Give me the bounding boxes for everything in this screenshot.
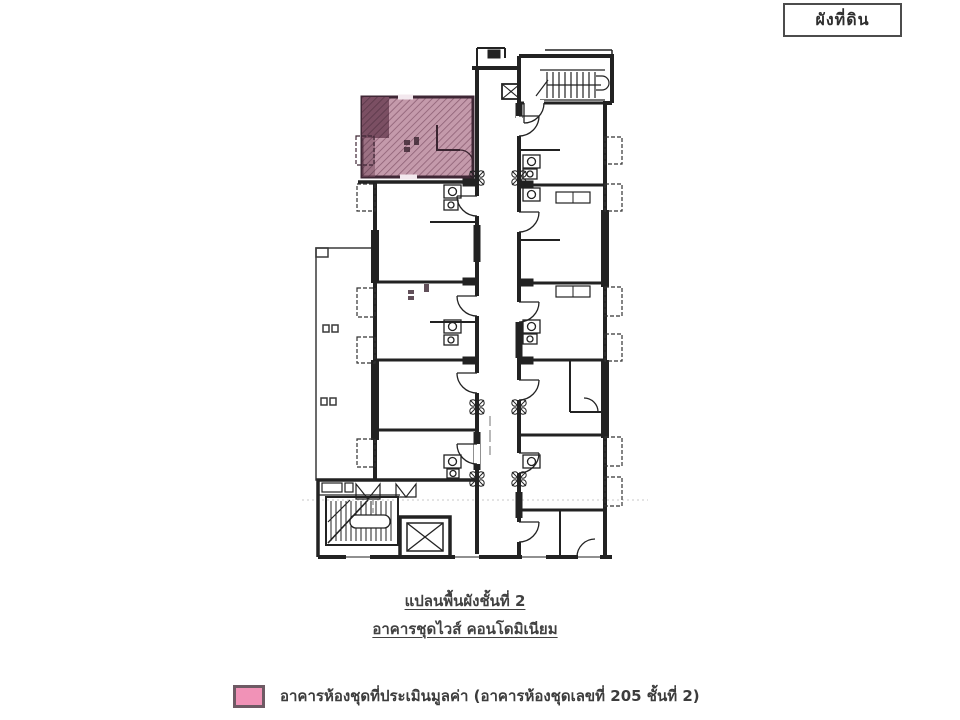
document-page: ผังที่ดิน [0,0,960,720]
title-box: ผังที่ดิน [783,3,902,37]
balcony [605,477,622,506]
balcony [605,437,622,466]
plan-captions: แปลนพื้นผังชั้นที่ 2 อาคารชุดไวส์ คอนโดม… [285,592,645,648]
caption-floor-plan: แปลนพื้นผังชั้นที่ 2 [285,592,645,611]
balcony [357,184,375,211]
balcony [605,184,622,211]
balconies-right [605,137,622,506]
balcony [357,337,375,363]
floor-plan-drawing [298,38,652,572]
balcony [605,287,622,316]
terrace-outline [316,248,375,480]
caption-building-name: อาคารชุดไวส์ คอนโดมิเนียม [285,620,645,639]
balcony [357,439,375,467]
balcony [605,137,622,164]
balcony [357,288,375,317]
highlighted-unit-dark-corner [362,97,389,138]
legend: อาคารห้องชุดที่ประเมินมูลค่า (อาคารห้องช… [233,684,700,708]
legend-label: อาคารห้องชุดที่ประเมินมูลค่า (อาคารห้องช… [280,684,700,708]
balcony [605,334,622,361]
title-box-label: ผังที่ดิน [815,8,869,33]
stair-bottom-symbol [326,497,398,545]
legend-swatch [233,685,265,708]
elevator-bottom-symbol [400,517,450,557]
stair-top-symbol [536,70,609,100]
